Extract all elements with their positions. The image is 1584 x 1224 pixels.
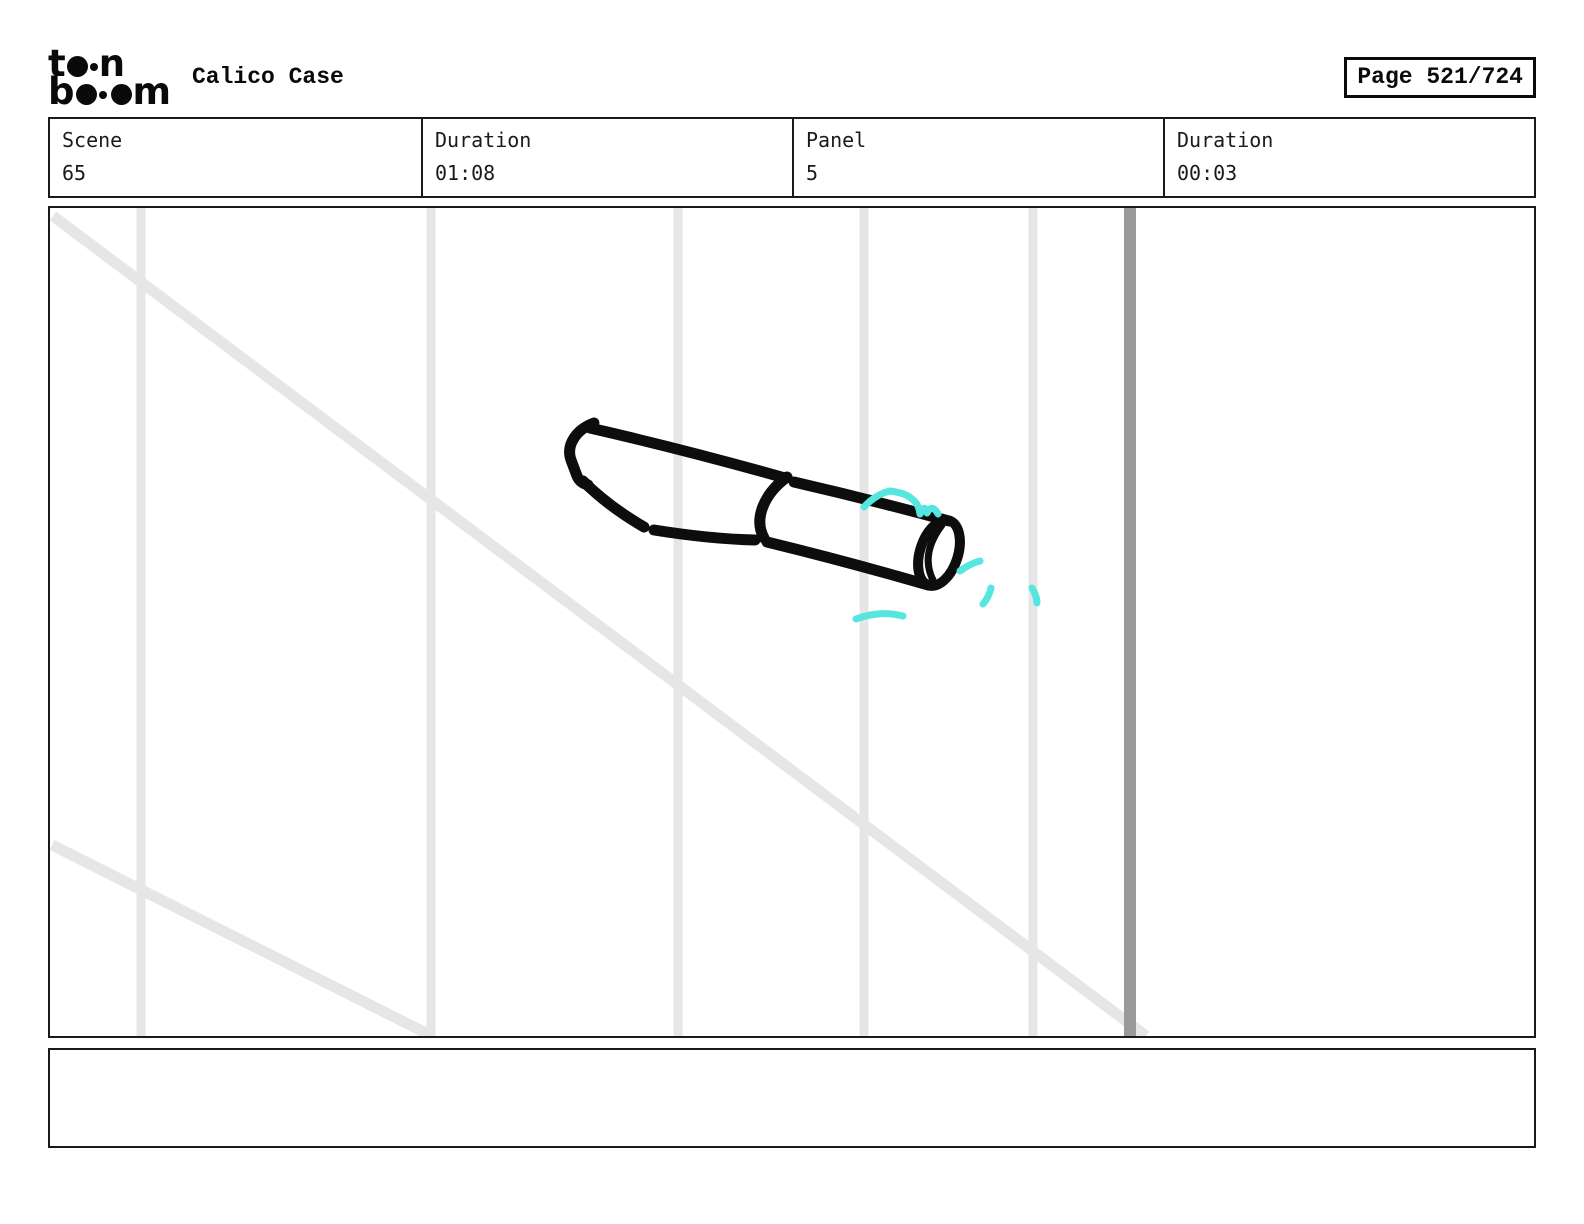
scene-duration-value: 01:08	[435, 161, 780, 185]
toonboom-logo-icon: t n b m	[48, 49, 174, 105]
logo-dot-icon	[99, 91, 107, 99]
info-cell-panel-duration: Duration 00:03	[1163, 119, 1534, 196]
logo-letter: b	[48, 78, 73, 105]
panel-value: 5	[806, 161, 1151, 185]
sketch-body-top-edge	[590, 428, 785, 478]
info-cell-scene-duration: Duration 01:08	[421, 119, 792, 196]
panel-duration-value: 00:03	[1177, 161, 1522, 185]
logo-dot-icon	[111, 84, 132, 105]
logo-letter: n	[99, 50, 123, 77]
marker-sketch	[570, 423, 968, 591]
logo-letter: m	[133, 78, 170, 105]
project-title: Calico Case	[192, 64, 344, 90]
guide-lines-light	[52, 208, 1146, 1036]
panel-info-bar: Scene 65 Duration 01:08 Panel 5 Duration…	[48, 117, 1536, 198]
page-number-label: Page 521/724	[1357, 64, 1523, 90]
cyan-dash	[960, 561, 980, 571]
cyan-tick	[983, 588, 991, 604]
logo-dot-icon	[76, 84, 97, 105]
scene-duration-label: Duration	[435, 128, 780, 152]
panel-drawing	[50, 208, 1534, 1036]
guide-diagonal-line	[52, 845, 432, 1036]
sketch-barrel-bottom-edge	[767, 542, 928, 585]
page-header: t n b m Calico Case Page 521/724	[48, 44, 1536, 110]
logo-dot-icon	[90, 63, 98, 71]
info-cell-panel: Panel 5	[792, 119, 1163, 196]
cyan-accent-strokes	[856, 491, 1037, 619]
caption-box	[48, 1048, 1536, 1148]
scene-value: 65	[62, 161, 409, 185]
sketch-body-bottom-edge	[654, 530, 755, 540]
scene-label: Scene	[62, 128, 409, 152]
cyan-bottom-arc	[856, 614, 903, 619]
page-number-box: Page 521/724	[1344, 57, 1536, 98]
storyboard-panel	[48, 206, 1536, 1038]
panel-duration-label: Duration	[1177, 128, 1522, 152]
sketch-body-lower-edge	[583, 481, 644, 527]
info-cell-scene: Scene 65	[50, 119, 421, 196]
guide-diagonal-line	[53, 216, 1146, 1036]
sketch-joint-arc	[760, 477, 787, 538]
panel-label: Panel	[806, 128, 1151, 152]
